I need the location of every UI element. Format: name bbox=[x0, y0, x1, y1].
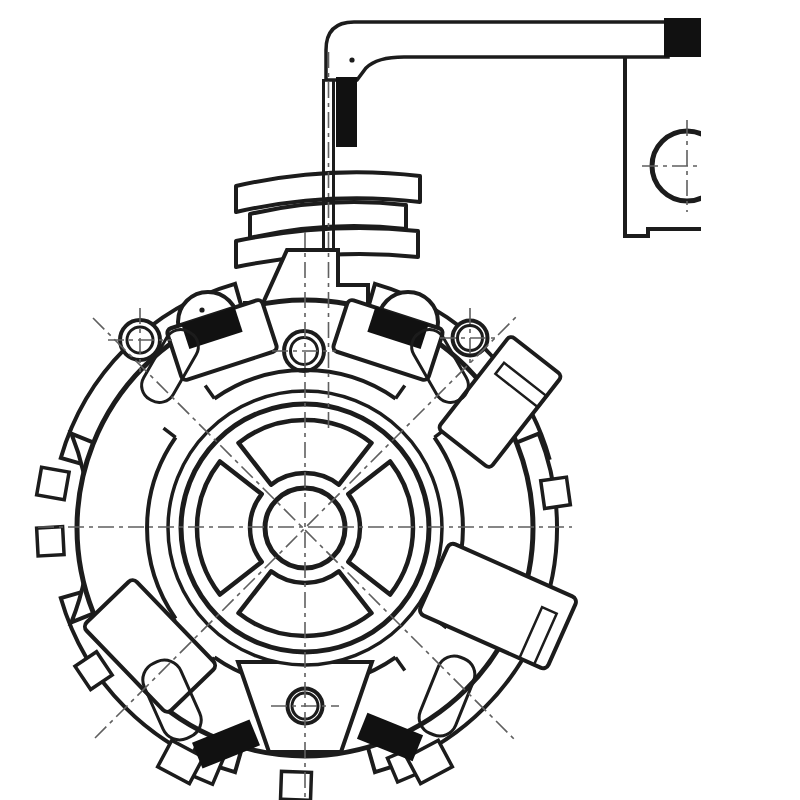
terminal-arm-hatched-body bbox=[326, 22, 668, 80]
arm-weld-dot bbox=[349, 57, 354, 62]
terminal-arm bbox=[326, 18, 701, 80]
spring-pivot-dot-nw bbox=[199, 307, 204, 312]
mounting-bracket bbox=[625, 57, 722, 236]
stud-black-insulator bbox=[336, 77, 357, 147]
technical-drawing-canvas bbox=[0, 0, 800, 800]
terminal-arm-black-cap bbox=[664, 18, 701, 57]
brush-holder-assembly-drawing bbox=[0, 0, 800, 800]
